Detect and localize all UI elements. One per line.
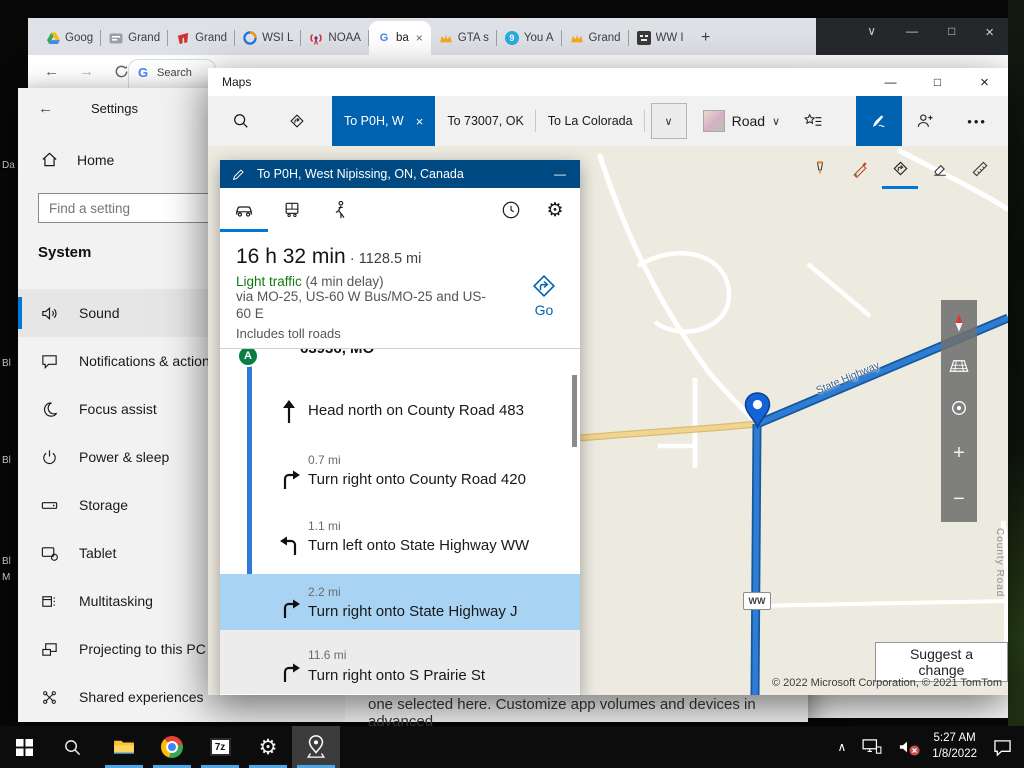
card-site-icon [109,31,123,45]
go-diamond-icon [528,270,560,302]
shared-experiences-icon [40,688,59,707]
google-logo-icon: G [138,65,148,80]
browser-forward-button[interactable]: → [79,63,94,80]
riot-site-icon [176,31,190,45]
search-icon [63,738,82,757]
settings-footer-text: one selected here. Customize app volumes… [368,696,808,730]
desktop-icon-label[interactable]: Bl [2,455,17,466]
route-options-gear-icon[interactable]: ⚙ [533,188,577,232]
windows-logo-icon [16,739,33,756]
highlighter-pen-icon[interactable] [840,151,880,186]
route-tabs-dropdown[interactable]: ∨ [651,103,687,139]
taskbar-settings[interactable]: ⚙ [244,726,292,768]
map-copyright: © 2022 Microsoft Corporation, © 2021 Tom… [772,677,1002,689]
chrome-close-button[interactable]: × [985,24,994,41]
leave-time-clock-icon[interactable] [489,188,533,232]
direction-step[interactable]: 11.6 mi Turn right onto S Prairie St [220,630,580,694]
desktop-wallpaper-strip [1008,0,1024,726]
taskbar: 7z ⚙ ∧ 5:27 AM 1/8/2022 [0,726,1024,768]
route-duration: 16 h 32 min [236,245,346,268]
search-icon[interactable] [218,96,264,146]
panel-minimize-icon[interactable]: — [554,167,566,181]
map-location-pin-icon [744,392,771,429]
taskbar-clock[interactable]: 5:27 AM 1/8/2022 [932,731,977,762]
eraser-icon[interactable] [920,151,960,186]
new-tab-button[interactable]: + [692,21,720,55]
dark-site-icon [637,31,651,45]
storage-drive-icon [40,496,59,515]
chrome-window-controls: ∨ — □ × [867,24,994,41]
desktop-icon-label[interactable]: M [2,572,17,583]
direction-step[interactable]: 1.1 mi Turn left onto State Highway WW [220,515,580,574]
edit-pencil-icon[interactable] [232,168,245,181]
browser-tab[interactable]: Grand [168,21,235,55]
browser-back-button[interactable]: ← [44,63,59,80]
network-icon[interactable] [862,739,882,755]
ink-pen-button-active[interactable] [856,96,902,146]
settings-back-button[interactable]: ← [38,100,53,117]
turn-left-icon [278,533,302,557]
suggest-a-change-button[interactable]: Suggest a change [875,642,1008,682]
multitasking-icon [40,592,59,611]
ballpoint-pen-icon[interactable] [800,151,840,186]
route-tab-73007[interactable]: To 73007, OK [435,96,535,146]
directions-panel: To P0H, West Nipissing, ON, Canada — ⚙ 1… [220,160,580,695]
route-distance: 1128.5 mi [359,251,422,267]
go-button[interactable]: Go [528,270,560,318]
highway-shield-label: WW [743,592,771,610]
browser-tab[interactable]: Grand [101,21,168,55]
settings-home-item[interactable]: Home [40,150,114,169]
google-drive-icon [46,31,60,45]
traffic-status: Light traffic [236,274,302,289]
route-summary: 16 h 32 min·1128.5 mi Light traffic (4 m… [220,232,580,349]
7zip-icon: 7z [210,738,231,756]
wsi-site-icon [243,31,257,45]
ink-directions-icon[interactable] [880,151,920,186]
direction-step[interactable]: Head north on County Road 483 [220,384,580,446]
chrome-icon [161,736,183,758]
desktop-icon-label[interactable]: Da [2,160,17,171]
map-style-thumbnail [703,110,725,132]
zoom-in-button[interactable]: + [953,443,965,463]
browser-tab[interactable]: GTA s [431,21,497,55]
directions-step-list: A 63936, MO Head north on County Road 48… [220,349,580,694]
google-favicon-icon: G [377,31,391,45]
route-tab-p0h[interactable]: To P0H, W × [332,96,435,146]
speaker-icon [40,304,59,323]
browser-tab[interactable]: NOAA [301,21,369,55]
ink-toolbar [800,151,1000,186]
chrome-maximize-button[interactable]: □ [948,24,955,41]
direction-step[interactable]: 0.7 mi Turn right onto County Road 420 [220,449,580,515]
maps-maximize-button[interactable]: □ [914,68,961,96]
map-controls-panel: + − [941,300,977,522]
turn-right-icon [278,660,302,684]
chrome-menu-chevron-icon[interactable]: ∨ [867,24,876,41]
origin-address: 63936, MO [300,349,374,357]
clock-date: 1/8/2022 [932,747,977,763]
browser-tab[interactable]: Grand [562,21,629,55]
file-explorer-icon [113,738,135,756]
tray-chevron-up-icon[interactable]: ∧ [837,740,846,754]
settings-window-title: Settings [91,101,138,116]
straight-arrow-icon [278,398,300,424]
map-tilt-icon[interactable] [949,359,969,373]
transit-mode-icon[interactable] [268,188,316,232]
settings-section-title: System [38,244,91,261]
direction-step-selected[interactable]: 2.2 mi Turn right onto State Highway J [220,574,580,630]
maps-window: Maps — □ × To P0H, W × To 73007, OK To L… [208,68,1008,695]
page-search-label: Search [157,67,192,79]
directions-destination: To P0H, West Nipissing, ON, Canada [257,167,554,181]
clock-time: 5:27 AM [932,731,977,747]
taskbar-chrome[interactable] [148,726,196,768]
chrome-tab-strip: Goog Grand Grand WSI L NOAA G ba × GTA s [28,18,816,55]
locate-me-icon[interactable] [950,399,968,417]
desktop-icon-label[interactable]: Bl [2,556,17,567]
taskbar-maps-active[interactable] [292,726,340,768]
noaa-radio-icon [309,31,323,45]
maps-pin-icon [306,735,326,759]
nine-site-icon: 9 [505,31,519,45]
taskbar-7zip[interactable]: 7z [196,726,244,768]
projecting-icon [40,640,59,659]
maps-window-title: Maps [222,75,251,89]
chevron-down-icon: ∨ [772,115,780,128]
directions-scrollbar[interactable] [572,375,577,447]
maps-toolbar: To P0H, W × To 73007, OK To La Colorada … [208,96,1008,146]
taskbar-file-explorer[interactable] [100,726,148,768]
crown-site-icon [439,31,453,45]
drive-mode-icon[interactable] [220,188,268,232]
route-tab-la-colorada[interactable]: To La Colorada [536,96,645,146]
gear-icon: ⚙ [259,735,278,759]
origin-marker: A [237,349,259,367]
ruler-icon[interactable] [960,151,1000,186]
directions-icon[interactable] [274,96,320,146]
desktop-icon-label[interactable]: Bl [2,358,17,369]
chevron-down-icon: ∨ [665,115,673,128]
route-tab-close-icon[interactable]: × [416,114,424,129]
zoom-out-button[interactable]: − [953,489,965,509]
traffic-delay: (4 min delay) [302,274,384,289]
moon-icon [40,400,59,419]
map-canvas[interactable]: State Highway WW County Road Suggest a c… [208,146,1008,695]
browser-tab[interactable]: Goog [38,21,101,55]
add-person-icon[interactable] [902,96,948,146]
action-center-icon[interactable] [993,739,1012,756]
start-button[interactable] [0,726,48,768]
more-options-icon[interactable]: ••• [954,96,1000,146]
browser-tab-active[interactable]: G ba × [369,21,431,55]
maps-minimize-button[interactable]: — [867,68,914,96]
favorites-icon[interactable] [790,96,836,146]
taskbar-search-button[interactable] [48,726,96,768]
chrome-minimize-button[interactable]: — [906,24,918,41]
browser-tab[interactable]: WSI L [235,21,301,55]
travel-mode-bar: ⚙ [220,188,580,232]
map-style-selector[interactable]: Road ∨ [703,110,781,132]
turn-right-icon [278,467,302,491]
notification-bubble-icon [40,352,59,371]
browser-tab[interactable]: WW I [629,21,692,55]
directions-panel-header[interactable]: To P0H, West Nipissing, ON, Canada — [220,160,580,188]
tab-close-icon[interactable]: × [416,31,423,45]
crown-site-icon [570,31,584,45]
county-road-label: County Road [994,528,1005,597]
browser-tab[interactable]: 9 You A [497,21,562,55]
tablet-icon [40,544,59,563]
walk-mode-icon[interactable] [316,188,364,232]
route-via: via MO-25, US-60 W Bus/MO-25 and US-60 E [236,289,486,323]
home-icon [40,150,59,169]
maps-close-button[interactable]: × [961,68,1008,96]
toll-note: Includes toll roads [236,326,564,341]
compass-icon[interactable] [952,313,966,333]
turn-right-icon [278,596,302,620]
volume-muted-icon[interactable] [898,739,916,755]
browser-refresh-button[interactable] [114,64,129,79]
power-icon [40,448,59,467]
